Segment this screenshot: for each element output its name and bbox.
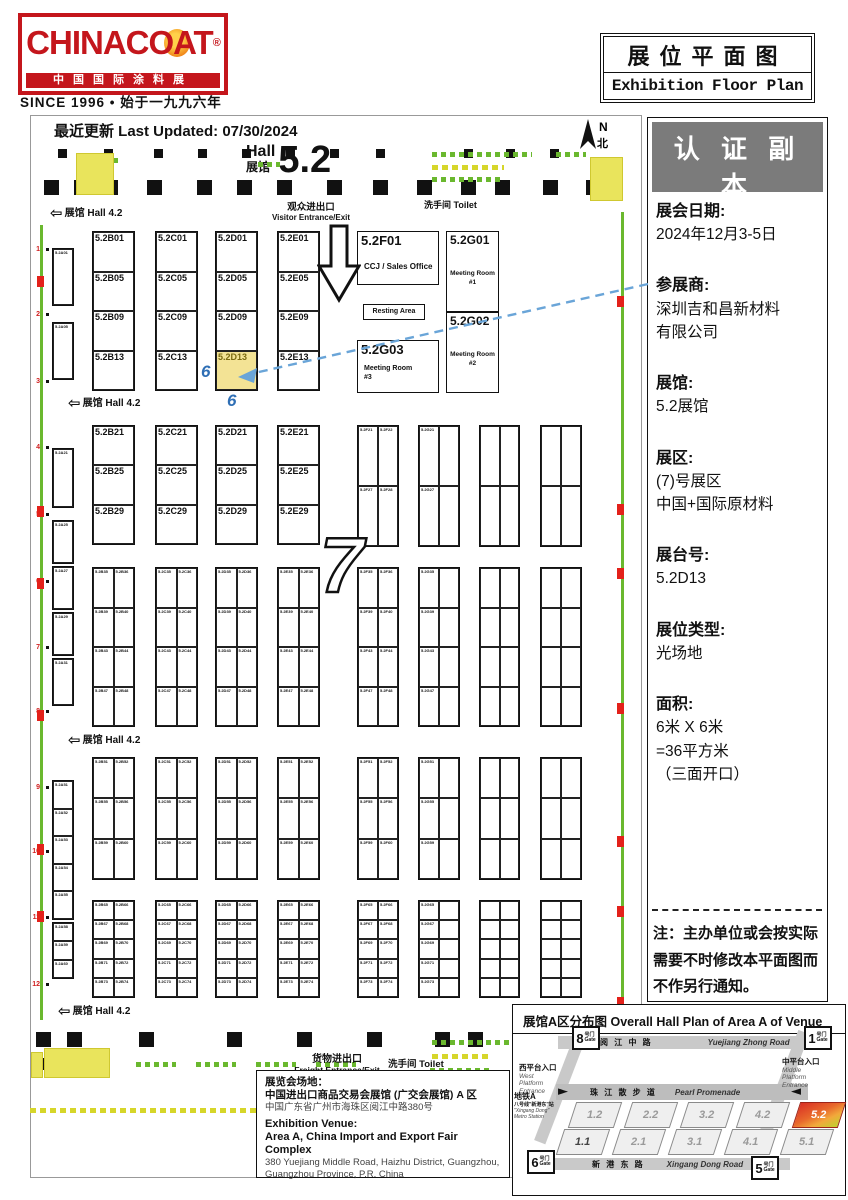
hall-3.1: 3.1 bbox=[668, 1129, 722, 1155]
chinacoat-logo: CHINACOAT® 中国国际涂料展 bbox=[18, 13, 228, 95]
red-tick bbox=[37, 276, 44, 287]
road: 珠 江 散 步 道Pearl Promenade bbox=[556, 1084, 808, 1100]
booth-5.2B51: 5.2B51 bbox=[93, 758, 114, 798]
booth-5.2B55: 5.2B55 bbox=[93, 798, 114, 838]
booth-5.2D68: 5.2D68 bbox=[237, 920, 258, 939]
red-tick bbox=[617, 568, 624, 579]
aisle-marker-9: 9 bbox=[26, 784, 40, 791]
booth-5.2C05: 5.2C05 bbox=[156, 272, 197, 312]
room-Resting Area: Resting Area bbox=[363, 304, 425, 320]
booth-5.2D39: 5.2D39 bbox=[216, 608, 237, 648]
booth-5.2D47: 5.2D47 bbox=[216, 687, 237, 727]
svg-text:北: 北 bbox=[597, 136, 608, 150]
pillar bbox=[277, 180, 292, 195]
booth-empty bbox=[500, 920, 520, 939]
plant-strip bbox=[136, 1062, 176, 1067]
booth-empty bbox=[480, 426, 500, 486]
booth-5.2A25: 5.2A25 bbox=[53, 521, 73, 563]
field-展馆:: 展馆:5.2展馆 bbox=[656, 374, 823, 418]
marker-dot bbox=[46, 646, 49, 649]
room-5.2F01: 5.2F01CCJ / Sales Office bbox=[357, 231, 439, 285]
booth-5.2F21: 5.2F21 bbox=[358, 426, 378, 486]
booth-5.2D73: 5.2D73 bbox=[216, 978, 237, 997]
booth-empty bbox=[561, 939, 581, 958]
booth-block: 5.2F655.2F665.2F675.2F685.2F695.2F705.2F… bbox=[357, 900, 399, 998]
booth-5.2A55: 5.2A55 bbox=[53, 891, 73, 919]
hall-1.1: 1.1 bbox=[556, 1129, 610, 1155]
booth-5.2B59: 5.2B59 bbox=[93, 839, 114, 879]
hall-42-link: ⇦展馆 Hall 4.2 bbox=[68, 394, 140, 412]
pillar bbox=[36, 1032, 51, 1047]
booth-5.2G43: 5.2G43 bbox=[419, 647, 439, 687]
booth-5.2B25: 5.2B25 bbox=[93, 465, 134, 504]
booth-5.2A51: 5.2A51 bbox=[53, 781, 73, 809]
booth-5.2G65: 5.2G65 bbox=[419, 901, 439, 920]
booth-5.2B40: 5.2B40 bbox=[114, 608, 135, 648]
booth-5.2B56: 5.2B56 bbox=[114, 798, 135, 838]
booth-empty bbox=[561, 839, 581, 879]
pillar bbox=[495, 180, 510, 195]
booth-empty bbox=[541, 647, 561, 687]
booth-5.2E47: 5.2E47 bbox=[278, 687, 299, 727]
booth-5.2E56: 5.2E56 bbox=[299, 798, 320, 838]
title-box: 展位平面图 Exhibition Floor Plan bbox=[600, 33, 815, 103]
booth-5.2E25: 5.2E25 bbox=[278, 465, 319, 504]
service-block bbox=[44, 1048, 110, 1078]
pillar bbox=[58, 149, 67, 158]
booth-5.2F56: 5.2F56 bbox=[378, 798, 398, 838]
aisle-marker-2: 2 bbox=[26, 311, 40, 318]
booth-5.2F66: 5.2F66 bbox=[378, 901, 398, 920]
svg-text:N: N bbox=[599, 120, 608, 134]
booth-empty bbox=[480, 959, 500, 978]
booth-empty bbox=[541, 426, 561, 486]
booth-5.2A60: 5.2A60 bbox=[53, 960, 73, 978]
aisle-marker-1: 1 bbox=[26, 246, 40, 253]
left-boundary-line bbox=[40, 225, 43, 1020]
booth-5.2G27: 5.2G27 bbox=[419, 486, 439, 546]
booth-empty bbox=[439, 798, 459, 838]
booth-5.2F70: 5.2F70 bbox=[378, 939, 398, 958]
booth-5.2D74: 5.2D74 bbox=[237, 978, 258, 997]
booth-empty bbox=[439, 486, 459, 546]
booth-5.2G51: 5.2G51 bbox=[419, 758, 439, 798]
booth-block: 5.2D015.2D055.2D095.2D13 bbox=[215, 231, 258, 391]
booth-5.2C39: 5.2C39 bbox=[156, 608, 177, 648]
booth-block: 5.2G515.2G555.2G59 bbox=[418, 757, 460, 880]
booth-5.2F73: 5.2F73 bbox=[358, 978, 378, 997]
booth-5.2B65: 5.2B65 bbox=[93, 901, 114, 920]
booth-5.2F40: 5.2F40 bbox=[378, 608, 398, 648]
booth-empty bbox=[500, 426, 520, 486]
left-arrow-icon: ⇦ bbox=[58, 1002, 71, 1020]
pillar bbox=[461, 180, 476, 195]
booth-5.2A59: 5.2A59 bbox=[53, 941, 73, 959]
booth-empty bbox=[439, 959, 459, 978]
pillar bbox=[376, 149, 385, 158]
booth-block: 5.2A29 bbox=[52, 612, 74, 656]
booth-5.2A21: 5.2A21 bbox=[53, 449, 73, 507]
booth-empty bbox=[500, 978, 520, 997]
booth-block: 5.2G655.2G675.2G695.2G715.2G73 bbox=[418, 900, 460, 998]
booth-5.2D35: 5.2D35 bbox=[216, 568, 237, 608]
booth-5.2G55: 5.2G55 bbox=[419, 798, 439, 838]
red-tick bbox=[37, 844, 44, 855]
venue-cn-label: 展览会场地： bbox=[265, 1076, 501, 1089]
booth-block: 5.2C515.2C525.2C555.2C565.2C595.2C60 bbox=[155, 757, 198, 880]
booth-5.2B09: 5.2B09 bbox=[93, 311, 134, 351]
plant-strip bbox=[556, 152, 586, 157]
disclaimer-note: 注：主办单位或会按实际需要不时修改本平面图而不作另行通知。 bbox=[653, 921, 825, 1001]
red-tick bbox=[617, 906, 624, 917]
booth-5.2G67: 5.2G67 bbox=[419, 920, 439, 939]
booth-5.2C69: 5.2C69 bbox=[156, 939, 177, 958]
booth-empty bbox=[480, 687, 500, 727]
booth-5.2C66: 5.2C66 bbox=[177, 901, 198, 920]
compass-icon: N 北 bbox=[568, 116, 618, 156]
hall-42-link: ⇦展馆 Hall 4.2 bbox=[50, 204, 122, 222]
aisle-marker-4: 4 bbox=[26, 444, 40, 451]
booth-5.2A29: 5.2A29 bbox=[53, 613, 73, 655]
hall-4.2: 4.2 bbox=[736, 1102, 790, 1128]
booth-5.2B48: 5.2B48 bbox=[114, 687, 135, 727]
booth-empty bbox=[439, 758, 459, 798]
booth-empty bbox=[439, 608, 459, 648]
booth-5.2C29: 5.2C29 bbox=[156, 505, 197, 544]
booth-empty bbox=[561, 920, 581, 939]
hall-5.2: 5.2 bbox=[792, 1102, 846, 1128]
booth-5.2F67: 5.2F67 bbox=[358, 920, 378, 939]
booth-5.2A58: 5.2A58 bbox=[53, 923, 73, 941]
booth-5.2F72: 5.2F72 bbox=[378, 959, 398, 978]
booth-block bbox=[540, 425, 582, 547]
booth-block: 5.2B355.2B365.2B395.2B405.2B435.2B445.2B… bbox=[92, 567, 135, 727]
booth-5.2C25: 5.2C25 bbox=[156, 465, 197, 504]
booth-5.2D01: 5.2D01 bbox=[216, 232, 257, 272]
entrance-arrow-icon bbox=[317, 224, 361, 304]
right-boundary-line bbox=[621, 212, 624, 1006]
pillar bbox=[330, 149, 339, 158]
booth-empty bbox=[439, 647, 459, 687]
aisle-marker-3: 3 bbox=[26, 378, 40, 385]
booth-5.2E66: 5.2E66 bbox=[299, 901, 320, 920]
booth-block bbox=[479, 900, 520, 998]
booth-5.2C73: 5.2C73 bbox=[156, 978, 177, 997]
booth-empty bbox=[480, 978, 500, 997]
pillar bbox=[139, 1032, 154, 1047]
marker-dot bbox=[46, 786, 49, 789]
booth-5.2D51: 5.2D51 bbox=[216, 758, 237, 798]
room-5.2G03: 5.2G03Meeting Room#3 bbox=[357, 340, 439, 393]
booth-5.2G73: 5.2G73 bbox=[419, 978, 439, 997]
booth-block: 5.2D655.2D665.2D675.2D685.2D695.2D705.2D… bbox=[215, 900, 258, 998]
booth-5.2A54: 5.2A54 bbox=[53, 864, 73, 892]
booth-empty bbox=[500, 939, 520, 958]
booth-5.2E67: 5.2E67 bbox=[278, 920, 299, 939]
booth-5.2C09: 5.2C09 bbox=[156, 311, 197, 351]
hall-4.1: 4.1 bbox=[724, 1129, 778, 1155]
hall-42-link: ⇦展馆 Hall 4.2 bbox=[68, 731, 140, 749]
booth-5.2D09: 5.2D09 bbox=[216, 311, 257, 351]
zone-number: 7 bbox=[312, 520, 376, 608]
booth-5.2C40: 5.2C40 bbox=[177, 608, 198, 648]
booth-5.2F74: 5.2F74 bbox=[378, 978, 398, 997]
booth-block: 5.2F515.2F525.2F555.2F565.2F595.2F60 bbox=[357, 757, 399, 880]
booth-5.2F60: 5.2F60 bbox=[378, 839, 398, 879]
booth-empty bbox=[561, 647, 581, 687]
booth-block bbox=[540, 900, 582, 998]
booth-5.2E55: 5.2E55 bbox=[278, 798, 299, 838]
booth-block bbox=[540, 567, 582, 727]
booth-5.2B39: 5.2B39 bbox=[93, 608, 114, 648]
pillar bbox=[227, 1032, 242, 1047]
booth-5.2F65: 5.2F65 bbox=[358, 901, 378, 920]
note-divider bbox=[652, 909, 822, 911]
venue-en-label: Exhibition Venue: bbox=[265, 1118, 501, 1131]
booth-5.2D66: 5.2D66 bbox=[237, 901, 258, 920]
plant-strip bbox=[30, 1108, 260, 1113]
booth-empty bbox=[439, 939, 459, 958]
booth-5.2D69: 5.2D69 bbox=[216, 939, 237, 958]
booth-empty bbox=[480, 568, 500, 608]
booth-empty bbox=[480, 939, 500, 958]
booth-5.2D59: 5.2D59 bbox=[216, 839, 237, 879]
marker-dot bbox=[46, 446, 49, 449]
booth-5.2C44: 5.2C44 bbox=[177, 647, 198, 687]
booth-5.2C36: 5.2C36 bbox=[177, 568, 198, 608]
left-arrow-icon: ⇦ bbox=[68, 394, 81, 412]
hall-42-link: ⇦展馆 Hall 4.2 bbox=[58, 1002, 130, 1020]
booth-5.2E74: 5.2E74 bbox=[299, 978, 320, 997]
pillar bbox=[154, 149, 163, 158]
booth-5.2G39: 5.2G39 bbox=[419, 608, 439, 648]
marker-dot bbox=[46, 313, 49, 316]
booth-5.2E69: 5.2E69 bbox=[278, 939, 299, 958]
booth-5.2A01: 5.2A01 bbox=[53, 249, 73, 305]
service-block bbox=[76, 153, 114, 195]
pillar bbox=[242, 149, 251, 158]
booth-5.2B43: 5.2B43 bbox=[93, 647, 114, 687]
booth-5.2C60: 5.2C60 bbox=[177, 839, 198, 879]
venue-en-address2: Guangzhou Province, P.R. China bbox=[265, 1169, 501, 1180]
hall-2.1: 2.1 bbox=[612, 1129, 666, 1155]
left-arrow-icon: ⇦ bbox=[68, 731, 81, 749]
marker-dot bbox=[46, 983, 49, 986]
gate-6: 6号门Gate bbox=[527, 1150, 555, 1174]
hall-1.2: 1.2 bbox=[568, 1102, 622, 1128]
pillar bbox=[197, 180, 212, 195]
booth-empty bbox=[561, 568, 581, 608]
booth-5.2F71: 5.2F71 bbox=[358, 959, 378, 978]
booth-5.2E21: 5.2E21 bbox=[278, 426, 319, 465]
booth-block: 5.2A25 bbox=[52, 520, 74, 564]
registered-mark: ® bbox=[213, 37, 220, 49]
pillar bbox=[373, 180, 388, 195]
plant-strip bbox=[432, 1040, 520, 1045]
booth-empty bbox=[500, 608, 520, 648]
booth-5.2E70: 5.2E70 bbox=[299, 939, 320, 958]
middle-platform-entrance: 中平台入口MiddlePlatformEntrance bbox=[782, 1058, 840, 1089]
booth-5.2E72: 5.2E72 bbox=[299, 959, 320, 978]
service-block bbox=[31, 1052, 43, 1078]
booth-5.2D44: 5.2D44 bbox=[237, 647, 258, 687]
booth-empty bbox=[480, 486, 500, 546]
aisle-marker-7: 7 bbox=[26, 644, 40, 651]
booth-5.2C71: 5.2C71 bbox=[156, 959, 177, 978]
booth-5.2B68: 5.2B68 bbox=[114, 920, 135, 939]
field-展台号:: 展台号:5.2D13 bbox=[656, 546, 823, 590]
booth-5.2E44: 5.2E44 bbox=[299, 647, 320, 687]
booth-5.2E65: 5.2E65 bbox=[278, 901, 299, 920]
booth-5.2G69: 5.2G69 bbox=[419, 939, 439, 958]
svg-text:7: 7 bbox=[320, 521, 367, 608]
booth-empty bbox=[500, 839, 520, 879]
red-tick bbox=[617, 504, 624, 515]
red-tick bbox=[617, 836, 624, 847]
booth-5.2C67: 5.2C67 bbox=[156, 920, 177, 939]
booth-empty bbox=[480, 920, 500, 939]
booth-5.2F69: 5.2F69 bbox=[358, 939, 378, 958]
booth-block: 5.2C355.2C365.2C395.2C405.2C435.2C445.2C… bbox=[155, 567, 198, 727]
pillar bbox=[327, 180, 342, 195]
venue-cn-address: 中国广东省广州市海珠区阅江中路380号 bbox=[265, 1102, 501, 1113]
booth-5.2E13: 5.2E13 bbox=[278, 351, 319, 391]
gate-8: 8号门Gate bbox=[572, 1026, 600, 1050]
booth-block: 5.2E655.2E665.2E675.2E685.2E695.2E705.2E… bbox=[277, 900, 320, 998]
booth-5.2F36: 5.2F36 bbox=[378, 568, 398, 608]
booth-empty bbox=[500, 798, 520, 838]
certified-copy-badge: 认 证 副 本 CERTIFIED COPY bbox=[652, 122, 823, 192]
booth-5.2C52: 5.2C52 bbox=[177, 758, 198, 798]
booth-5.2B66: 5.2B66 bbox=[114, 901, 135, 920]
booth-5.2B05: 5.2B05 bbox=[93, 272, 134, 312]
booth-5.2D56: 5.2D56 bbox=[237, 798, 258, 838]
logo-brand: CHINACOAT® bbox=[22, 17, 224, 69]
booth-empty bbox=[561, 758, 581, 798]
booth-5.2C01: 5.2C01 bbox=[156, 232, 197, 272]
pillar bbox=[67, 1032, 82, 1047]
booth-empty bbox=[541, 758, 561, 798]
booth-5.2F44: 5.2F44 bbox=[378, 647, 398, 687]
booth-block: 5.2C015.2C055.2C095.2C13 bbox=[155, 231, 198, 391]
booth-empty bbox=[439, 901, 459, 920]
booth-5.2D25: 5.2D25 bbox=[216, 465, 257, 504]
field-展会日期:: 展会日期:2024年12月3-5日 bbox=[656, 202, 823, 246]
venue-en-name: Area A, China Import and Export Fair Com… bbox=[265, 1131, 501, 1157]
booth-5.2C21: 5.2C21 bbox=[156, 426, 197, 465]
booth-5.2B44: 5.2B44 bbox=[114, 647, 135, 687]
marker-dot bbox=[46, 248, 49, 251]
booth-5.2B72: 5.2B72 bbox=[114, 959, 135, 978]
booth-5.2F52: 5.2F52 bbox=[378, 758, 398, 798]
booth-5.2E39: 5.2E39 bbox=[278, 608, 299, 648]
booth-5.2E68: 5.2E68 bbox=[299, 920, 320, 939]
gate-5: 5号门Gate bbox=[751, 1156, 779, 1180]
booth-empty bbox=[561, 798, 581, 838]
booth-5.2E71: 5.2E71 bbox=[278, 959, 299, 978]
booth-5.2D48: 5.2D48 bbox=[237, 687, 258, 727]
booth-empty bbox=[541, 939, 561, 958]
booth-5.2D72: 5.2D72 bbox=[237, 959, 258, 978]
field-参展商:: 参展商:深圳吉和昌新材料有限公司 bbox=[656, 276, 823, 344]
booth-block: 5.2C655.2C665.2C675.2C685.2C695.2C705.2C… bbox=[155, 900, 198, 998]
booth-empty bbox=[561, 608, 581, 648]
plant-strip bbox=[196, 1062, 236, 1067]
booth-block bbox=[479, 567, 520, 727]
booth-empty bbox=[500, 687, 520, 727]
plant-strip bbox=[432, 177, 504, 182]
booth-5.2G47: 5.2G47 bbox=[419, 687, 439, 727]
marker-dot bbox=[46, 513, 49, 516]
room-5.2G01: 5.2G01Meeting Room#1 bbox=[446, 231, 499, 312]
room-5.2G02: 5.2G02Meeting Room#2 bbox=[446, 312, 499, 393]
hall-5.1: 5.1 bbox=[780, 1129, 834, 1155]
title-cn: 展位平面图 bbox=[604, 37, 811, 73]
booth-5.2C72: 5.2C72 bbox=[177, 959, 198, 978]
booth-5.2B73: 5.2B73 bbox=[93, 978, 114, 997]
marker-dot bbox=[46, 916, 49, 919]
booth-block: 5.2B215.2B255.2B29 bbox=[92, 425, 135, 545]
booth-5.2C68: 5.2C68 bbox=[177, 920, 198, 939]
booth-empty bbox=[561, 426, 581, 486]
booth-empty bbox=[439, 920, 459, 939]
booth-block: 5.2A31 bbox=[52, 658, 74, 706]
booth-5.2D05: 5.2D05 bbox=[216, 272, 257, 312]
booth-5.2A05: 5.2A05 bbox=[53, 323, 73, 379]
booth-5.2E01: 5.2E01 bbox=[278, 232, 319, 272]
booth-5.2F51: 5.2F51 bbox=[358, 758, 378, 798]
booth-5.2E48: 5.2E48 bbox=[299, 687, 320, 727]
booth-empty bbox=[561, 901, 581, 920]
booth-5.2B52: 5.2B52 bbox=[114, 758, 135, 798]
booth-block: 5.2A21 bbox=[52, 448, 74, 508]
toilet-top-label: 洗手间 Toilet bbox=[424, 198, 477, 211]
booth-empty bbox=[439, 839, 459, 879]
booth-5.2D55: 5.2D55 bbox=[216, 798, 237, 838]
booth-5.2A52: 5.2A52 bbox=[53, 809, 73, 837]
pillar bbox=[147, 180, 162, 195]
booth-empty bbox=[500, 568, 520, 608]
field-展位类型:: 展位类型:光场地 bbox=[656, 621, 823, 665]
pillar bbox=[44, 180, 59, 195]
booth-5.2F59: 5.2F59 bbox=[358, 839, 378, 879]
booth-5.2C59: 5.2C59 bbox=[156, 839, 177, 879]
booth-5.2B67: 5.2B67 bbox=[93, 920, 114, 939]
pillar bbox=[367, 1032, 382, 1047]
booth-5.2B21: 5.2B21 bbox=[93, 426, 134, 465]
booth-5.2F22: 5.2F22 bbox=[378, 426, 398, 486]
booth-block: 5.2B015.2B055.2B095.2B13 bbox=[92, 231, 135, 391]
visitor-entrance-label: 观众进出口 Visitor Entrance/Exit bbox=[256, 199, 366, 222]
booth-empty bbox=[561, 959, 581, 978]
marker-dot bbox=[46, 380, 49, 383]
logo-cn-band: 中国国际涂料展 bbox=[26, 73, 220, 88]
page: CHINACOAT® 中国国际涂料展 SINCE 1996 • 始于一九九六年 … bbox=[0, 0, 848, 1200]
booth-5.2E35: 5.2E35 bbox=[278, 568, 299, 608]
booth-block: 5.2B655.2B665.2B675.2B685.2B695.2B705.2B… bbox=[92, 900, 135, 998]
pillar bbox=[543, 180, 558, 195]
booth-5.2D67: 5.2D67 bbox=[216, 920, 237, 939]
booth-block: 5.2D215.2D255.2D29 bbox=[215, 425, 258, 545]
metro-station-label: 地铁A八号线"新港东"站"Xingang Dong"Metro Station bbox=[514, 1092, 564, 1120]
booth-5.2D29: 5.2D29 bbox=[216, 505, 257, 544]
venue-en-address1: 380 Yuejiang Middle Road, Haizhu Distric… bbox=[265, 1157, 501, 1168]
booth-empty bbox=[541, 920, 561, 939]
plant-strip bbox=[258, 162, 280, 167]
booth-empty bbox=[500, 758, 520, 798]
booth-empty bbox=[480, 758, 500, 798]
booth-5.2A53: 5.2A53 bbox=[53, 836, 73, 864]
